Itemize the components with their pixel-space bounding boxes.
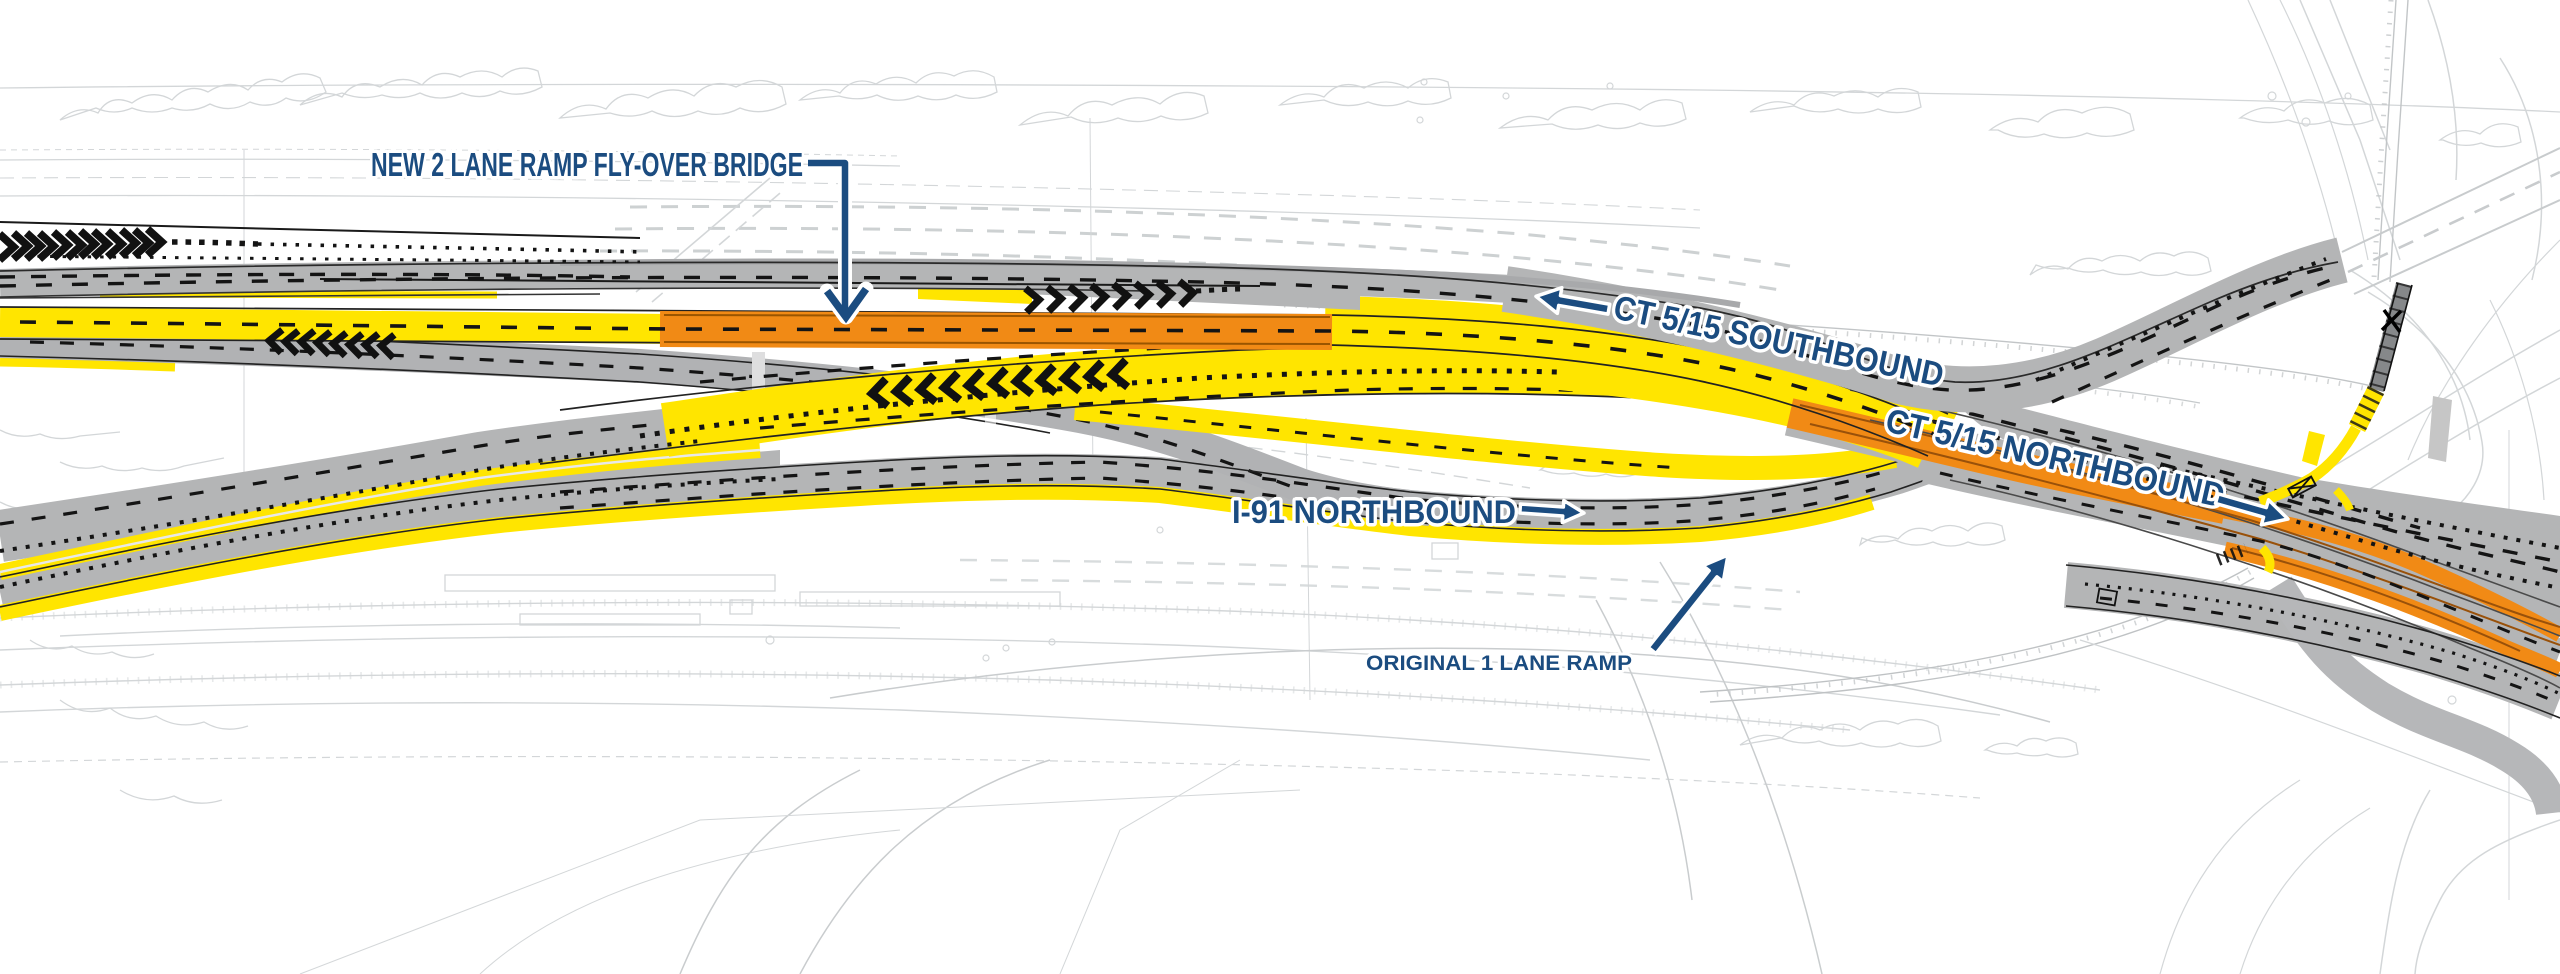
- svg-text:NEW 2 LANE RAMP FLY-OVER BRIDG: NEW 2 LANE RAMP FLY-OVER BRIDGE: [371, 146, 803, 183]
- svg-text:ORIGINAL 1 LANE RAMP: ORIGINAL 1 LANE RAMP: [1366, 651, 1632, 675]
- svg-text:I-91 NORTHBOUND: I-91 NORTHBOUND: [1232, 494, 1516, 530]
